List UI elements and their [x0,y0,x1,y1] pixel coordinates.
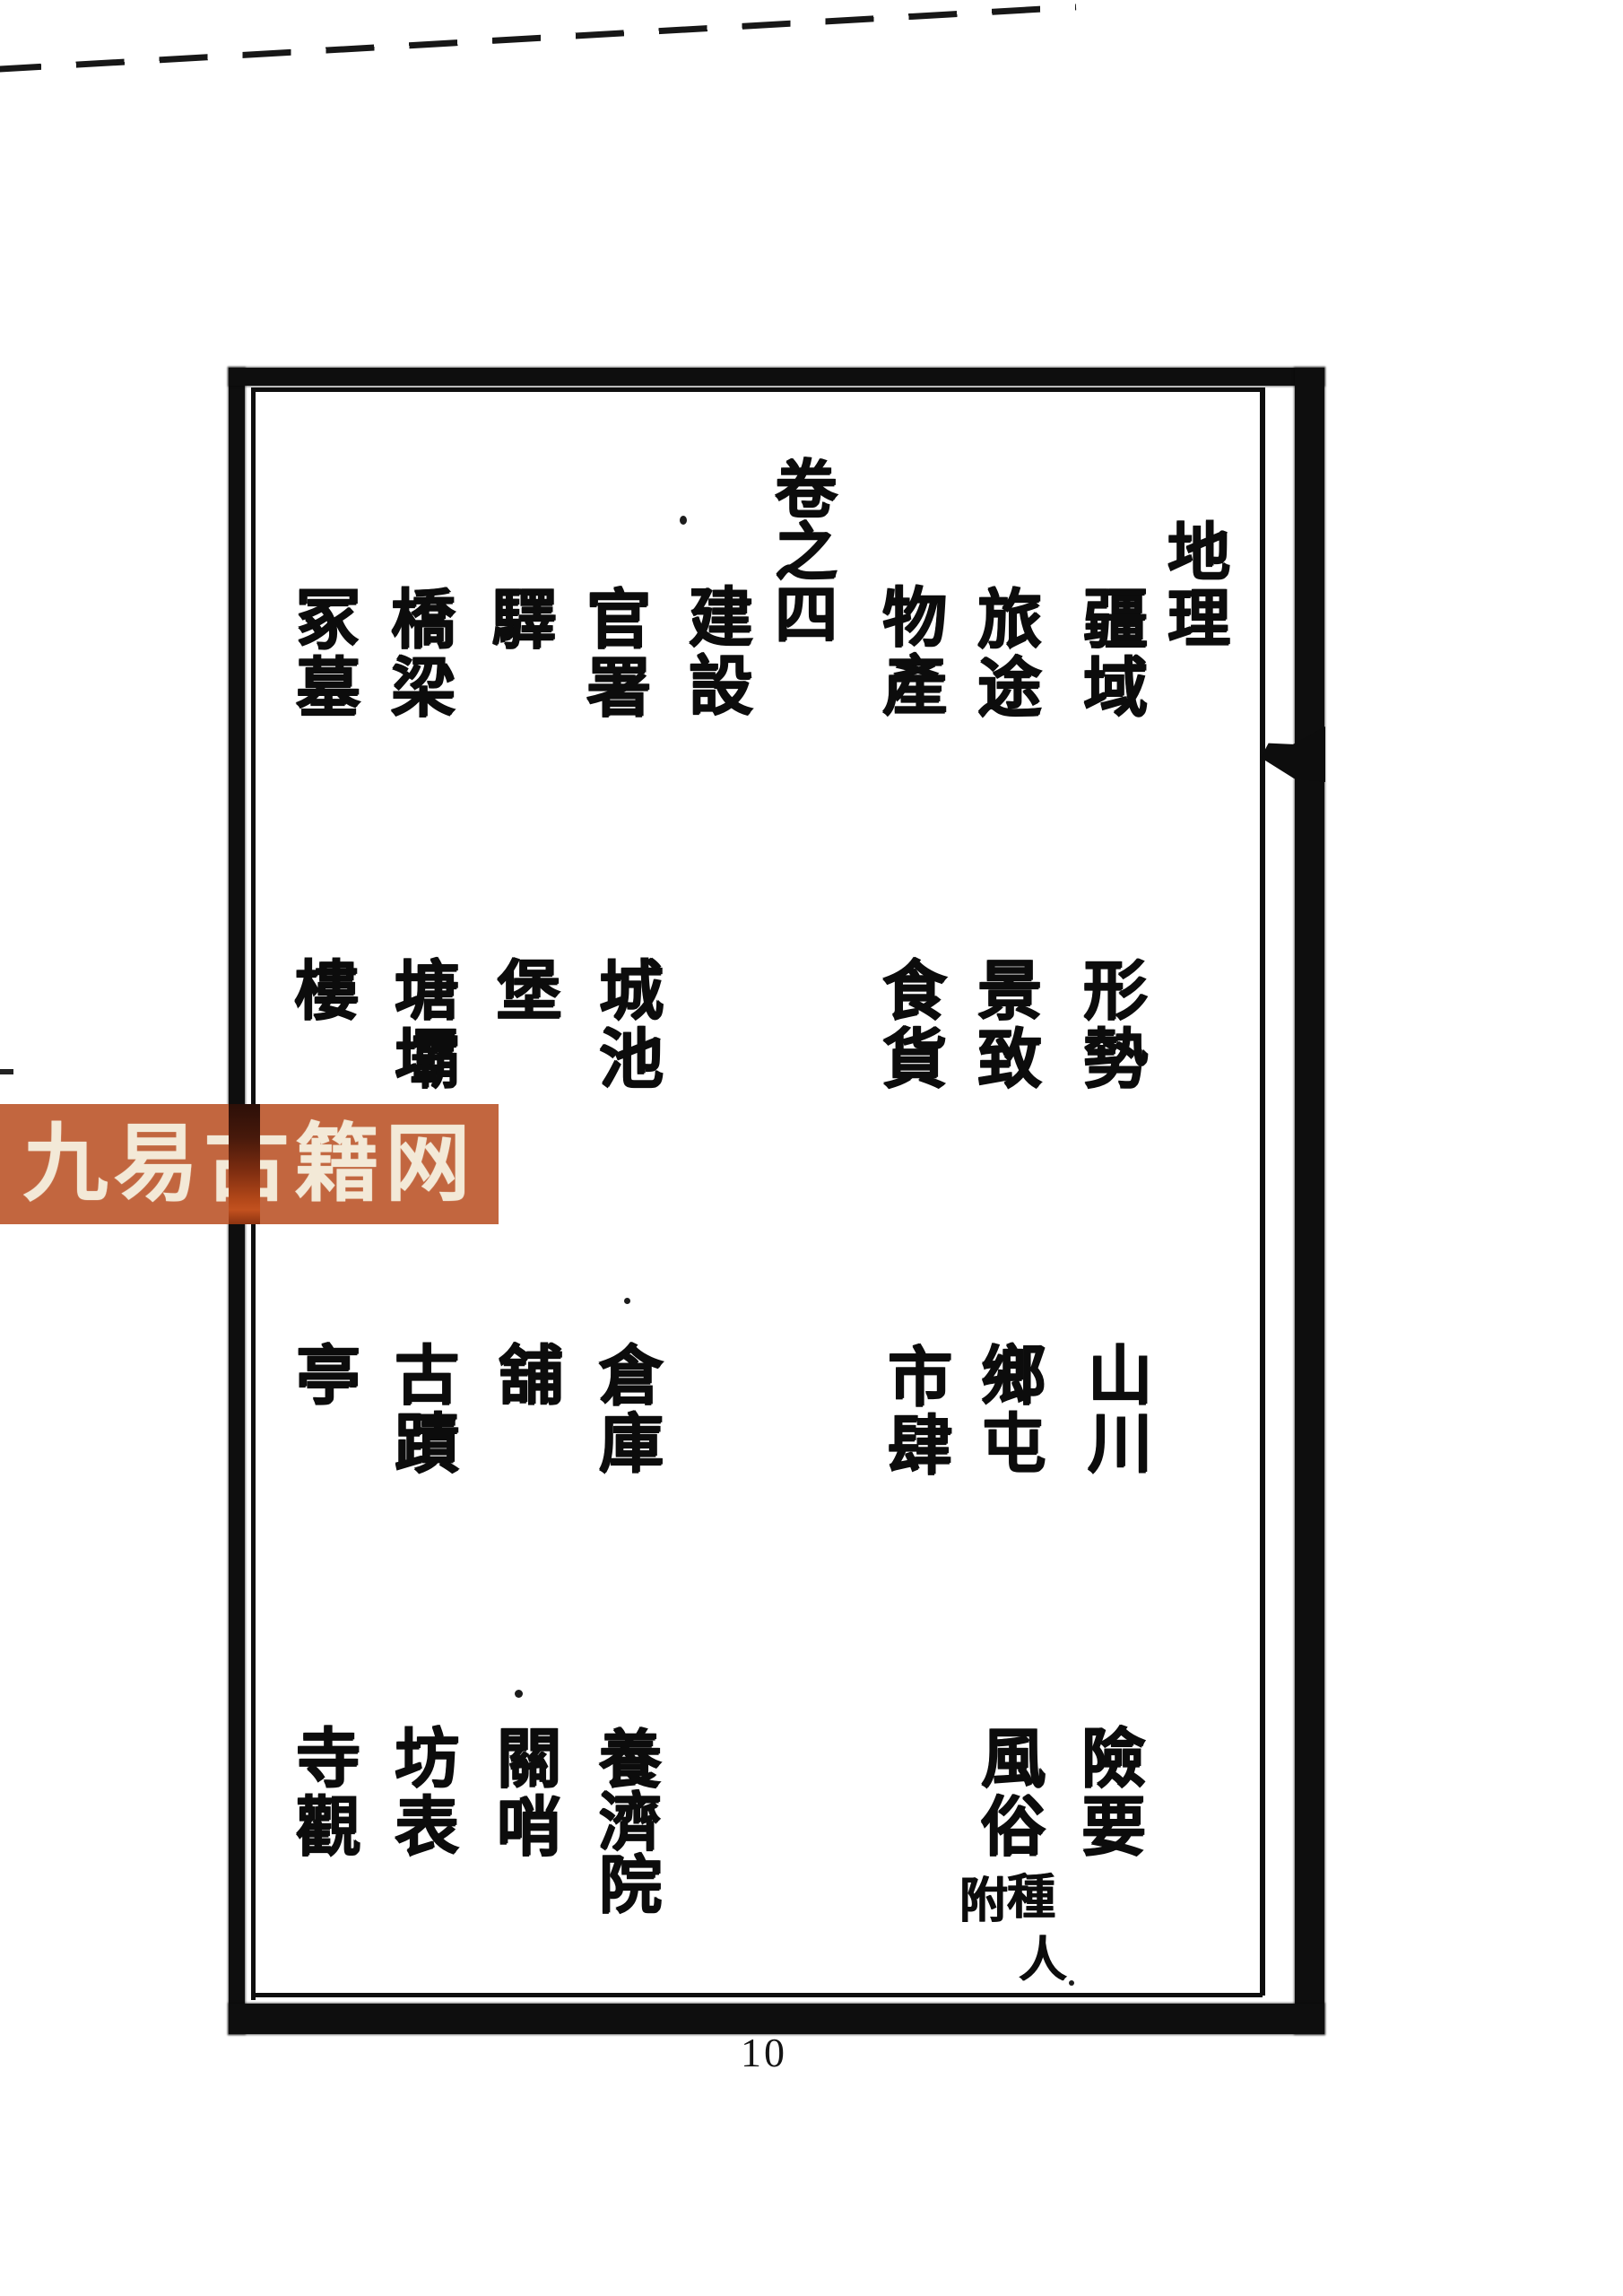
watermark-border-bleed-stripe [229,1104,260,1224]
toc-entry-guji: 古蹟 [387,1341,452,1477]
toc-entry-jiangyu: 疆域 [1076,585,1141,721]
toc-entry-lvtu: 旅途 [970,585,1035,721]
toc-note-ren: 人 [1013,1934,1062,1982]
section-title-geography: 地理 [1160,518,1223,651]
frame-inner-right [1260,387,1265,1996]
toc-entry-fengsu: 風俗 [974,1724,1038,1860]
toc-entry-pu: 舖 [491,1341,556,1409]
ink-speck [680,516,687,525]
toc-entry-xianyao: 險要 [1074,1724,1139,1860]
toc-entry-yi: 驛 [484,585,549,653]
toc-entry-guanshao: 關哨 [490,1724,554,1860]
ink-speck [1069,1980,1074,1986]
toc-entry-wuchan: 物產 [875,583,940,719]
frame-outer-right [1295,368,1324,2034]
toc-entry-bao: 堡 [490,956,554,1024]
frame-inner-top [251,387,1265,392]
ink-speck [624,1298,630,1304]
toc-note-zhong: 種 [1002,1871,1050,1919]
toc-entry-yangjiyuan: 養濟院 [592,1726,655,1914]
ink-speck [515,1690,523,1698]
toc-entry-fangbiao: 坊表 [387,1724,452,1860]
ink-smudge-wedge [1261,726,1325,782]
toc-entry-shihuo: 食貨 [875,956,940,1092]
scanned-book-page: 地理 卷之四 疆域 形勢 山川 險要 旅途 景致 鄉屯 風俗 附 種 人 物產 … [0,0,1623,2296]
toc-entry-siguan: 寺觀 [289,1724,353,1860]
toc-entry-xingshi: 形勢 [1076,956,1141,1092]
toc-entry-zhongmu: 冢墓 [289,585,353,721]
toc-entry-lou: 樓 [287,956,352,1024]
left-margin-dash-artifact [0,1069,13,1074]
toc-entry-jingzhi: 景致 [970,956,1035,1092]
toc-entry-cangku: 倉庫 [592,1341,656,1477]
watermark-banner: 九易古籍网 [0,1104,499,1224]
toc-note-fu: 附 [954,1874,1002,1923]
volume-label: 卷之四 [768,456,830,644]
toc-entry-shisi: 市肆 [881,1343,945,1479]
section-title-construction: 建設 [681,583,746,719]
toc-entry-tangba: 塘壩 [387,956,452,1092]
toc-entry-chengchi: 城池 [592,956,656,1092]
toc-entry-ting: 亭 [289,1341,353,1409]
toc-entry-shanchuan: 山川 [1081,1341,1145,1477]
frame-inner-bottom [251,1993,1263,1997]
toc-entry-xiangtun: 鄉屯 [974,1341,1038,1477]
toc-entry-guanshu: 官署 [579,585,644,721]
frame-outer-top [229,368,1324,386]
page-number: 10 [741,2029,787,2076]
toc-entry-qiaoliang: 橋梁 [384,585,448,721]
torn-edge-dashed-line [0,4,1076,73]
